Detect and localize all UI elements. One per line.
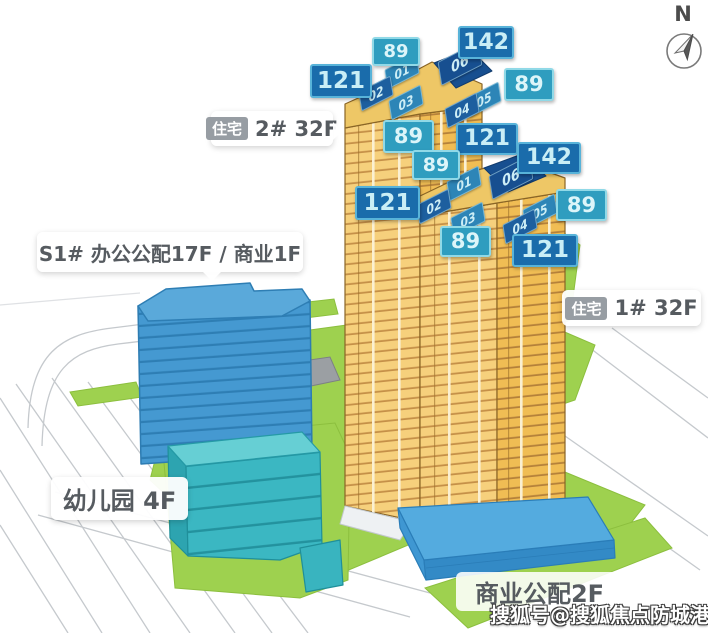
site-plan-page: 01 02 03 06 05 04 01 02 03 06 05 04 89 1… [0, 0, 708, 633]
area-badge: 121 [512, 234, 578, 267]
compass-north-label: N [656, 4, 708, 25]
area-badge: 121 [355, 186, 420, 220]
callout-pointer [202, 271, 222, 281]
area-badge: 121 [456, 123, 518, 155]
watermark: 搜狐号@搜狐焦点防城港站 [490, 599, 708, 628]
area-badge: 121 [310, 64, 372, 98]
area-badge: 142 [458, 26, 514, 59]
residential-chip: 住宅 [565, 297, 607, 320]
callout-residential-1: 住宅 1# 32F [562, 290, 701, 326]
callout-label: S1# 办公公配17F / 商业1F [39, 238, 301, 267]
callout-label: 2# 32F [255, 117, 338, 141]
residential-chip: 住宅 [206, 117, 248, 140]
area-badge: 142 [517, 142, 581, 174]
callout-pointer [333, 122, 342, 140]
area-badge: 89 [412, 150, 460, 180]
callout-kindergarten: 幼儿园 4F [51, 477, 188, 520]
callout-residential-2: 住宅 2# 32F [211, 111, 333, 146]
north-compass-icon: N [656, 4, 708, 82]
callout-label: 1# 32F [614, 296, 697, 320]
area-badge: 89 [440, 226, 491, 257]
callout-label: 幼儿园 4F [63, 481, 176, 516]
area-badge: 89 [556, 189, 607, 221]
area-badge: 89 [504, 68, 554, 101]
callout-office: S1# 办公公配17F / 商业1F [37, 232, 303, 272]
area-badge: 89 [383, 120, 434, 153]
compass-graphic [660, 25, 706, 75]
area-badge: 89 [372, 37, 420, 66]
